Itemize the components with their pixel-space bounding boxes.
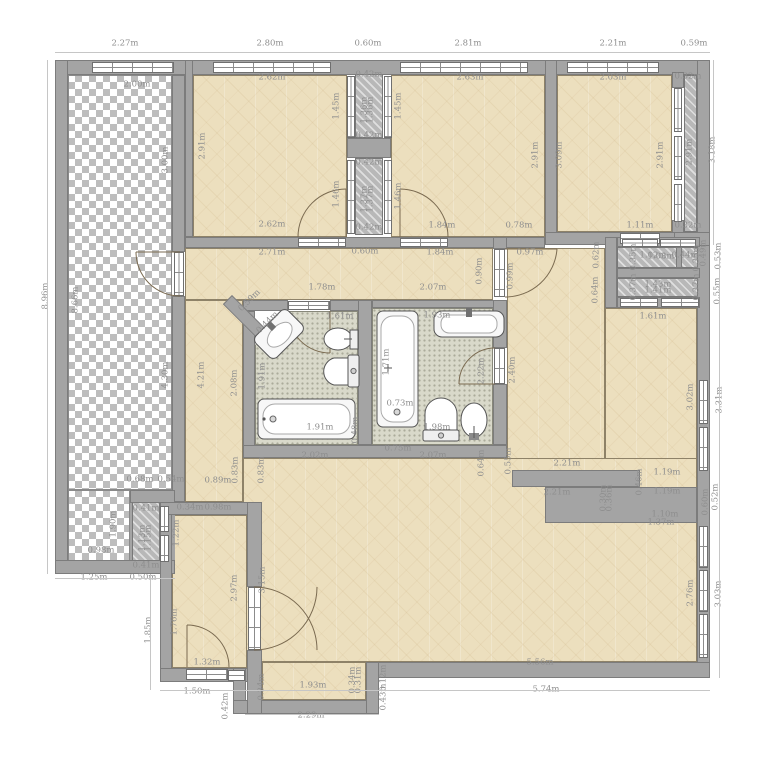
dim-label: 2.21m — [554, 460, 581, 469]
dim-label: 0.83m — [258, 457, 267, 484]
dim-label: 1.36m — [367, 97, 376, 124]
dimension-line — [55, 578, 175, 579]
dim-label: 3.00m — [162, 147, 171, 174]
door-arc — [136, 252, 180, 296]
drain-icon — [270, 416, 276, 422]
dim-label: 1.78m — [309, 284, 336, 293]
faucet-icon — [466, 308, 472, 317]
dim-label: 0.35m — [693, 245, 702, 272]
floor-plan: 2.27m2.80m0.60m2.81m2.21m0.59m8.96m3.18m… — [0, 0, 770, 768]
dim-label: 2.91m — [657, 142, 666, 169]
dim-label: 8.66m — [72, 287, 81, 314]
dim-label: 0.37m — [693, 274, 702, 301]
dim-label: 2.91m — [199, 133, 208, 160]
dim-label: 0.34m — [258, 674, 267, 701]
dim-label: 2.62m — [259, 221, 286, 230]
dim-label: 1.41m — [645, 287, 672, 296]
dim-label: 0.42m — [356, 132, 383, 141]
dim-label: 0.42m — [356, 159, 383, 168]
dimension-line — [245, 714, 379, 715]
bidet-bath2 — [461, 403, 487, 440]
dim-label: 3.02m — [687, 384, 696, 411]
dim-label: 1.84m — [429, 222, 456, 231]
dim-label: 1.45m — [333, 93, 342, 120]
dimension-line — [719, 248, 720, 678]
dim-label: 1.46m — [395, 183, 404, 210]
dim-label: 1.91m — [307, 424, 334, 433]
toilet-bath1 — [324, 355, 359, 387]
dim-label: 0.35m — [630, 244, 639, 271]
dim-label: 1.19m — [654, 469, 681, 478]
dim-label: 1.22m — [173, 520, 182, 547]
dim-label: 1.71m — [383, 349, 392, 376]
double-door-arc — [254, 587, 317, 650]
dim-label: 0.42m — [356, 71, 383, 80]
dim-label: 2.00m — [124, 81, 151, 90]
dim-label: 0.60m — [702, 489, 711, 516]
dim-label: 0.59m — [681, 40, 708, 49]
fixtures-doors-layer — [0, 0, 770, 768]
drain-icon — [394, 409, 400, 415]
dim-label: 0.99m — [507, 263, 516, 290]
dim-label: 0.42m — [356, 224, 383, 233]
dim-label: 4.30m — [162, 362, 171, 389]
dim-label: 2.03m — [600, 74, 627, 83]
dimension-line — [47, 60, 48, 574]
dim-label: 0.98m — [88, 547, 115, 556]
faucet-icon — [262, 417, 265, 420]
dim-label: 0.98m — [205, 504, 232, 513]
dimension-line — [55, 52, 710, 53]
dim-label: 1.15m — [145, 525, 154, 552]
dim-label: 2.21m — [600, 40, 627, 49]
dim-label: 2.91m — [532, 142, 541, 169]
dim-label: 4.21m — [198, 362, 207, 389]
dim-label: 0.62m — [593, 242, 602, 269]
dim-label: 0.37m — [630, 274, 639, 301]
dim-label: 0.90m — [476, 258, 485, 285]
dim-label: 1.61m — [640, 313, 667, 322]
dim-label: 2.71m — [259, 249, 286, 258]
dim-label: 1.76m — [171, 609, 180, 636]
dim-label: 2.40m — [509, 357, 518, 384]
dim-label: 1.98m — [424, 424, 451, 433]
dim-label: 3.09m — [556, 142, 565, 169]
dim-label: 2.29m — [298, 712, 325, 721]
dim-label: 1.91m — [259, 363, 268, 390]
dim-label: 1.10m — [652, 511, 679, 520]
dim-label: 5.56m — [527, 659, 554, 668]
dim-label: 1.19m — [654, 488, 681, 497]
dim-label: 0.64m — [592, 277, 601, 304]
dim-label: 0.73m — [387, 400, 414, 409]
flush-icon — [351, 368, 356, 373]
dim-label: 0.32m — [675, 222, 702, 231]
dim-label: 0.34m — [177, 504, 204, 513]
dim-label: 1.37m — [367, 186, 376, 213]
dim-label: 1.37m — [648, 519, 675, 528]
dim-label: 0.46m — [636, 469, 645, 496]
dim-label: 1.11m — [627, 222, 654, 231]
dim-label: 1.84m — [427, 249, 454, 258]
dim-label: 0.60m — [355, 40, 382, 49]
dim-label: 1.93m — [424, 312, 451, 321]
dim-label: 0.32m — [675, 73, 702, 82]
dim-label: 1.45m — [395, 93, 404, 120]
wall-bidet-bath1 — [324, 328, 358, 350]
dim-label: 2.21m — [544, 489, 571, 498]
dimension-line — [160, 690, 710, 691]
dim-label: 1.03m — [648, 253, 675, 262]
dim-label: 8.96m — [42, 283, 51, 310]
dim-label: 0.83m — [232, 457, 241, 484]
dim-label: 0.41m — [133, 505, 160, 514]
dim-label: 1.46m — [333, 181, 342, 208]
dim-label: 2.91m — [686, 139, 695, 166]
dim-label: 0.89m — [205, 477, 232, 486]
dim-label: 2.27m — [112, 40, 139, 49]
dim-label: 0.30m — [600, 485, 609, 512]
dim-label: 2.63m — [457, 74, 484, 83]
dim-label: 0.42m — [222, 693, 231, 720]
dim-label: 1.90m — [110, 511, 119, 538]
dim-label: 0.55m — [714, 278, 723, 305]
dim-label: 0.64m — [478, 450, 487, 477]
dim-label: 2.62m — [259, 74, 286, 83]
dim-label: 0.55m — [505, 448, 514, 475]
dim-label: 1.61m — [327, 313, 354, 322]
dim-label: 0.41m — [133, 562, 160, 571]
dim-label: 1.32m — [194, 659, 221, 668]
dim-label: 2.76m — [687, 580, 696, 607]
bathtub-1 — [258, 399, 355, 439]
dim-label: 2.81m — [455, 40, 482, 49]
dim-label: 2.80m — [257, 40, 284, 49]
dim-label: 2.02m — [302, 452, 329, 461]
dim-label: 0.75m — [385, 445, 412, 454]
dim-label: 3.15m — [259, 567, 268, 594]
dim-label: 1.85m — [145, 617, 154, 644]
dim-label: 2.07m — [420, 452, 447, 461]
dim-label: 0.78m — [506, 222, 533, 231]
dim-label: 0.12m — [380, 665, 389, 692]
dim-label: 0.68m — [127, 476, 154, 485]
dim-label: 0.54m — [158, 476, 185, 485]
toilet-bath2 — [423, 398, 459, 441]
dim-label: 3.31m — [716, 387, 725, 414]
dim-label: 0.48m — [352, 417, 361, 444]
dimension-line — [150, 574, 151, 690]
dim-label: 0.60m — [352, 248, 379, 257]
dim-label: 0.97m — [517, 249, 544, 258]
double-door-arc — [254, 587, 317, 650]
dim-label: 2.08m — [231, 370, 240, 397]
dim-label: 2.07m — [420, 284, 447, 293]
dim-label: 2.97m — [231, 575, 240, 602]
dimension-line — [713, 60, 714, 245]
dim-label: 1.50m — [184, 688, 211, 697]
flush-icon — [438, 433, 443, 438]
dim-label: 2.22m — [478, 358, 487, 385]
